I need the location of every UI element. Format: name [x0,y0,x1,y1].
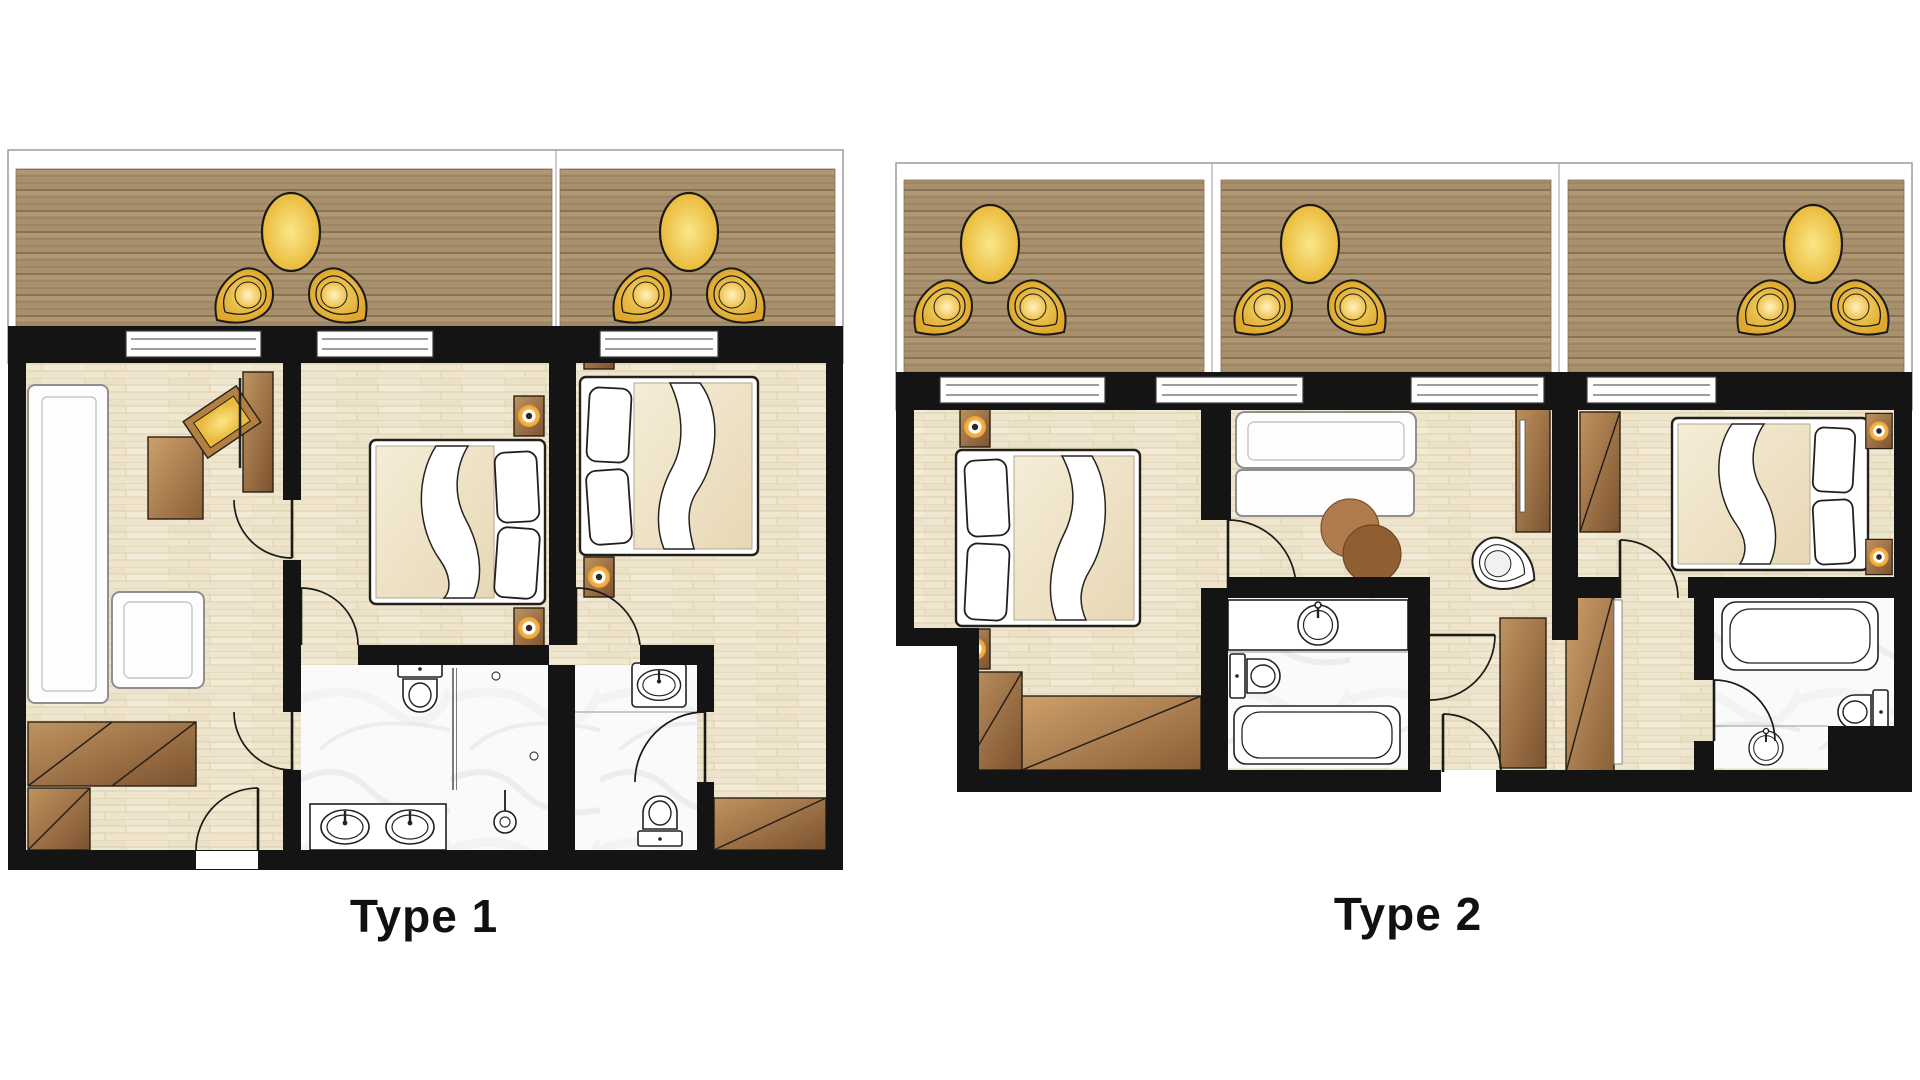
drain-icon [530,752,538,760]
interior-wall [1201,588,1228,770]
balcony-deck [904,180,1204,372]
coffee-table-icon [148,437,203,519]
interior-wall [283,770,301,850]
nightstand-lamp-icon [514,396,544,436]
entry-opening [196,851,258,869]
exterior-wall [8,850,843,870]
balcony-deck [1568,180,1904,372]
nightstand-lamp-icon [960,407,990,447]
window-icon [1411,377,1544,403]
exterior-wall [1894,410,1912,792]
balcony-deck [1221,180,1551,372]
round-coffee-table-icon [1343,525,1401,583]
bathroom-wall [1408,598,1430,770]
pillow-icon [964,543,1010,621]
bathroom-wall [1688,577,1912,598]
bathroom-wall [640,645,714,665]
bathtub-icon [1722,602,1878,670]
bathtub-icon [1234,706,1400,764]
floor-plan-canvas: Type 1 Type 2 [0,0,1920,1080]
floor-plans-svg [0,0,1920,1080]
double-bed-icon [370,440,545,604]
bathroom-wall [548,665,575,850]
sink-icon [321,810,369,844]
entry-opening [1441,772,1496,790]
exterior-wall [896,628,979,646]
interior-wall [283,363,301,500]
double-bed-icon [1672,418,1868,570]
drain-icon [492,672,500,680]
exterior-wall [896,372,914,646]
bathroom-wall [1828,726,1894,770]
type-2-label: Type 2 [1292,887,1524,941]
window-icon [1587,377,1716,403]
sofa-seat [1236,470,1414,516]
bathroom-wall [1694,598,1714,680]
window-icon [940,377,1105,403]
pillow-icon [494,527,541,600]
pillow-icon [586,387,632,463]
exterior-wall [1496,770,1912,792]
tv-screen-line [1520,420,1525,512]
nightstand-lamp-icon [1866,413,1892,448]
pillow-icon [494,451,540,523]
exterior-wall [957,646,979,770]
bathroom-wall [697,782,714,850]
sink-icon [637,670,680,701]
pillow-icon [1812,499,1855,565]
nightstand-lamp-icon [1866,539,1892,574]
double-bed-icon [956,450,1140,626]
sliding-panel [1614,600,1622,764]
type-2-plan [896,163,1912,792]
window-icon [317,331,433,357]
outside-area [896,646,957,770]
nightstand-lamp-icon [514,608,544,648]
exterior-wall [957,770,1441,792]
interior-wall [1578,577,1620,598]
armchair-icon [112,592,204,688]
interior-wall [283,560,301,712]
bathroom-wall [1228,577,1430,598]
sink-icon [386,810,434,844]
exterior-wall [8,326,26,870]
bathroom-wall [1694,741,1714,770]
nightstand-lamp-icon [584,557,614,597]
window-icon [1156,377,1303,403]
interior-wall [549,363,576,645]
bathroom-wall [358,645,549,665]
cabinet-icon [1500,618,1546,768]
double-bed-icon [580,377,758,555]
window-icon [600,331,718,357]
type-1-label: Type 1 [308,889,540,943]
pillow-icon [1812,427,1855,493]
interior-wall [1201,410,1231,520]
bathroom-wall [697,665,714,712]
type-1-plan [8,150,843,870]
exterior-wall [826,363,843,870]
interior-wall [1552,410,1578,640]
window-icon [126,331,261,357]
pillow-icon [964,459,1010,537]
wardrobe-icon [28,722,196,786]
pillow-icon [585,469,632,546]
